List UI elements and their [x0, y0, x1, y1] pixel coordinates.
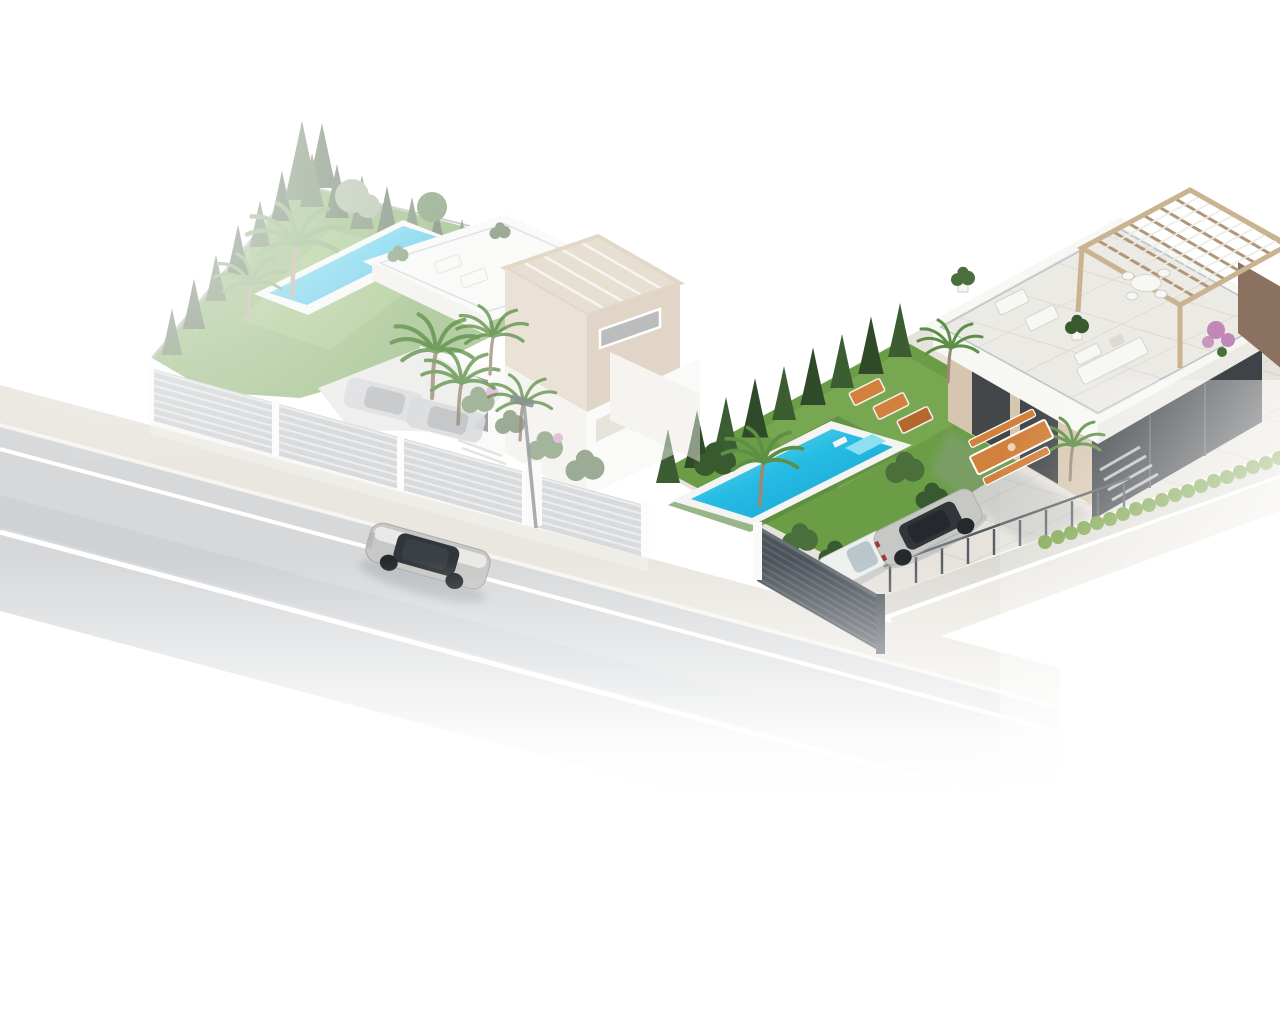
fence-corner-post — [876, 594, 885, 654]
scene-svg — [0, 0, 1280, 1024]
fence-end-post — [753, 522, 762, 580]
flower-bush — [553, 433, 563, 443]
roof-potted-plant — [951, 267, 975, 292]
render-canvas — [0, 0, 1280, 1024]
leafy-tree — [356, 194, 380, 218]
leafy-tree — [417, 192, 447, 222]
